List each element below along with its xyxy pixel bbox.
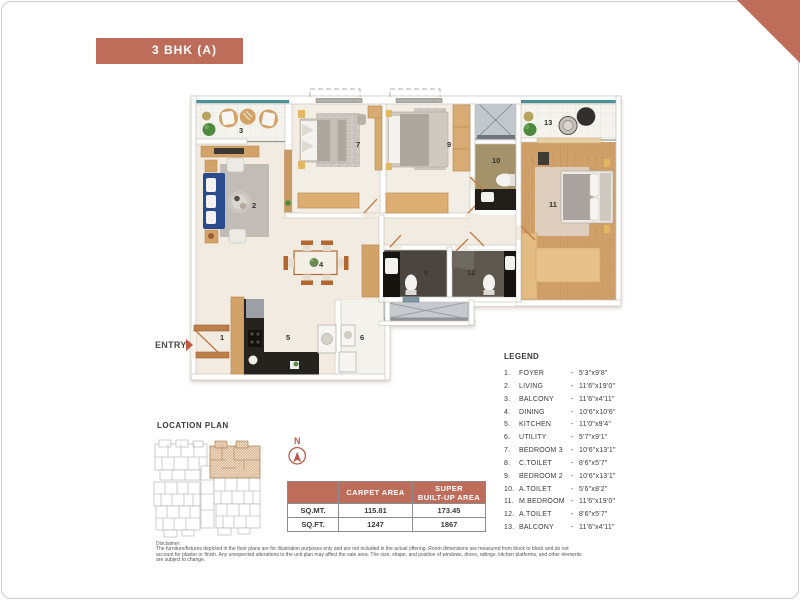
svg-text:1: 1 <box>220 333 224 342</box>
svg-text:N: N <box>294 436 301 446</box>
svg-text:3: 3 <box>239 126 243 135</box>
svg-text:12: 12 <box>467 268 475 277</box>
svg-text:9: 9 <box>447 140 451 149</box>
svg-text:8: 8 <box>424 268 428 277</box>
svg-text:10: 10 <box>492 156 500 165</box>
svg-text:7: 7 <box>356 140 360 149</box>
svg-text:11: 11 <box>549 200 557 209</box>
svg-text:2: 2 <box>252 201 256 210</box>
svg-text:13: 13 <box>544 118 552 127</box>
svg-text:5: 5 <box>286 333 290 342</box>
svg-text:6: 6 <box>360 333 364 342</box>
